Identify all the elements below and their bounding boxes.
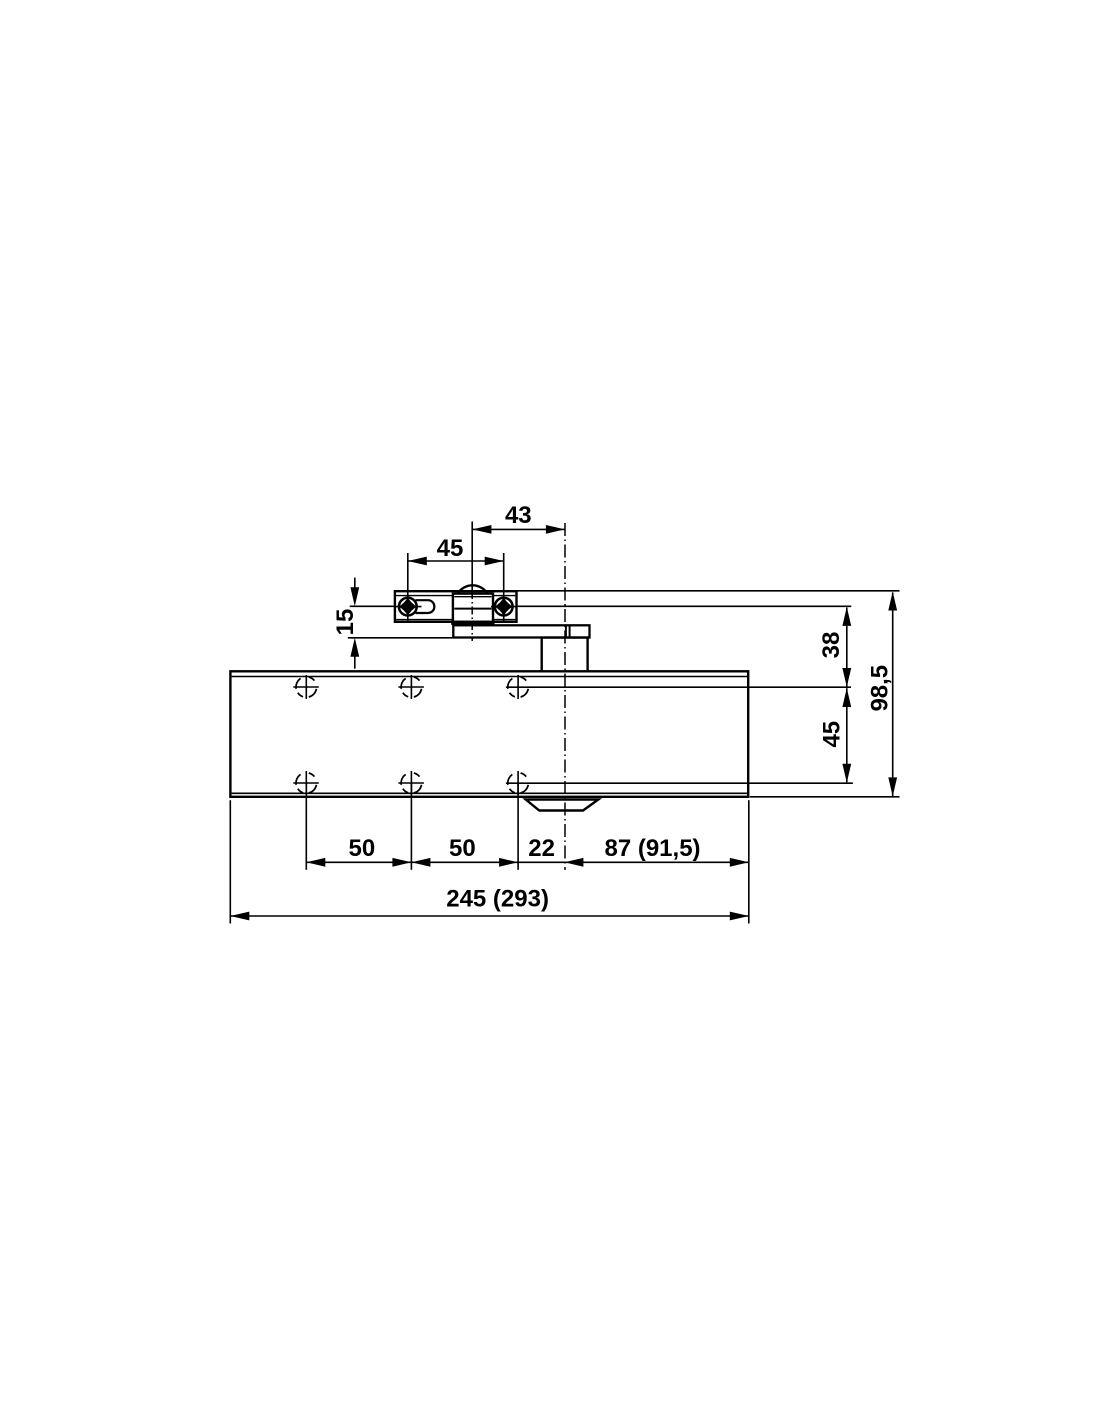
svg-text:245 (293): 245 (293) xyxy=(446,886,549,913)
svg-text:38: 38 xyxy=(818,632,845,659)
svg-text:43: 43 xyxy=(505,502,532,529)
svg-text:15: 15 xyxy=(332,609,359,636)
svg-text:45: 45 xyxy=(818,721,845,748)
svg-text:50: 50 xyxy=(349,835,376,862)
svg-text:22: 22 xyxy=(528,835,555,862)
svg-text:45: 45 xyxy=(437,535,464,562)
svg-text:87 (91,5): 87 (91,5) xyxy=(604,835,700,862)
svg-text:50: 50 xyxy=(449,835,476,862)
svg-text:98,5: 98,5 xyxy=(866,665,893,712)
